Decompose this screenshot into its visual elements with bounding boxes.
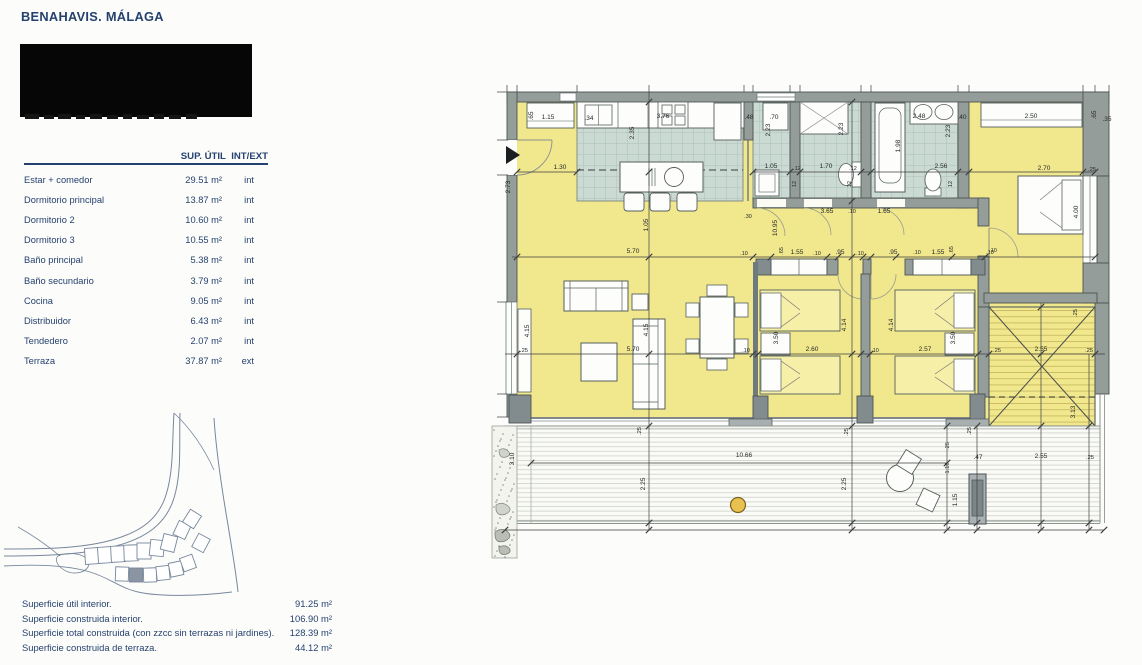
svg-text:.25: .25 (1088, 167, 1096, 173)
svg-text:.65: .65 (1091, 110, 1098, 119)
svg-text:3.65: 3.65 (821, 208, 834, 215)
svg-text:.10: .10 (740, 251, 748, 257)
svg-text:.25: .25 (844, 428, 850, 436)
svg-text:.70: .70 (769, 114, 778, 121)
svg-text:10.95: 10.95 (772, 219, 779, 236)
svg-text:1.55: 1.55 (791, 249, 804, 256)
svg-text:2.35: 2.35 (629, 126, 636, 139)
svg-text:.30: .30 (744, 214, 752, 220)
svg-text:4.15: 4.15 (524, 324, 531, 337)
svg-text:.25: .25 (967, 427, 973, 435)
svg-text:.12: .12 (793, 166, 801, 172)
svg-text:.65: .65 (528, 111, 535, 120)
svg-text:2.60: 2.60 (806, 346, 819, 353)
svg-text:1.70: 1.70 (820, 163, 833, 170)
svg-text:2.70: 2.70 (1038, 165, 1051, 172)
svg-text:2.57: 2.57 (919, 346, 932, 353)
svg-text:.25: .25 (993, 348, 1001, 354)
svg-text:2.73: 2.73 (505, 180, 512, 193)
svg-text:2.23: 2.23 (765, 123, 772, 136)
svg-text:.12: .12 (849, 166, 857, 172)
svg-text:3.13: 3.13 (1070, 405, 1077, 418)
svg-text:1.98: 1.98 (895, 139, 902, 152)
svg-text:1.65: 1.65 (878, 208, 891, 215)
svg-text:.25: .25 (1073, 309, 1079, 317)
svg-text:3.76: 3.76 (657, 113, 670, 120)
svg-text:.25: .25 (520, 348, 528, 354)
svg-text:.65: .65 (949, 246, 955, 254)
svg-text:1.15: 1.15 (542, 114, 555, 121)
svg-text:.10: .10 (856, 251, 864, 257)
svg-text:4.14: 4.14 (841, 318, 848, 331)
svg-text:.35: .35 (1102, 116, 1111, 123)
svg-text:4.15: 4.15 (643, 323, 650, 336)
svg-text:2.56: 2.56 (935, 163, 948, 170)
svg-text:12: 12 (792, 181, 798, 187)
svg-text:.65: .65 (779, 247, 785, 255)
svg-text:1.30: 1.30 (554, 164, 567, 171)
svg-text:.25: .25 (1085, 348, 1093, 354)
svg-text:.10: .10 (871, 348, 879, 354)
svg-text:2.23: 2.23 (838, 122, 845, 135)
svg-text:2.25: 2.25 (640, 477, 647, 490)
svg-text:2.55: 2.55 (1035, 453, 1048, 460)
svg-text:1.10: 1.10 (945, 462, 951, 473)
svg-text:2.48: 2.48 (913, 113, 926, 120)
svg-text:.40: .40 (957, 114, 966, 121)
svg-text:.10: .10 (848, 209, 856, 215)
svg-text:.25: .25 (637, 427, 643, 435)
svg-text:10.66: 10.66 (736, 452, 753, 459)
svg-text:.34: .34 (584, 115, 593, 122)
svg-text:1.05: 1.05 (643, 218, 650, 231)
svg-text:.95: .95 (835, 249, 844, 256)
svg-text:2.50: 2.50 (1025, 113, 1038, 120)
svg-text:5.70: 5.70 (627, 346, 640, 353)
svg-text:.25: .25 (1086, 455, 1094, 461)
svg-text:3.50: 3.50 (950, 331, 957, 344)
svg-text:2.23: 2.23 (945, 124, 952, 137)
svg-text:.48: .48 (744, 114, 753, 121)
svg-text:2.55: 2.55 (1035, 346, 1048, 353)
svg-text:.10: .10 (913, 250, 921, 256)
svg-text:1.55: 1.55 (932, 249, 945, 256)
svg-text:12: 12 (847, 181, 853, 187)
svg-text:1.05: 1.05 (765, 163, 778, 170)
svg-text:.10: .10 (813, 251, 821, 257)
svg-text:12: 12 (948, 181, 954, 187)
svg-text:4.00: 4.00 (1073, 205, 1080, 218)
svg-text:.10: .10 (742, 348, 750, 354)
svg-text:1.15: 1.15 (952, 493, 959, 506)
svg-text:.25: .25 (945, 442, 951, 450)
svg-text:5.70: 5.70 (627, 248, 640, 255)
svg-text:.10: .10 (989, 248, 997, 254)
svg-text:4.14: 4.14 (888, 318, 895, 331)
svg-text:.95: .95 (888, 249, 897, 256)
svg-text:.47: .47 (973, 454, 982, 461)
svg-text:2.25: 2.25 (841, 477, 848, 490)
svg-text:3.10: 3.10 (509, 452, 516, 465)
svg-text:3.50: 3.50 (773, 331, 780, 344)
